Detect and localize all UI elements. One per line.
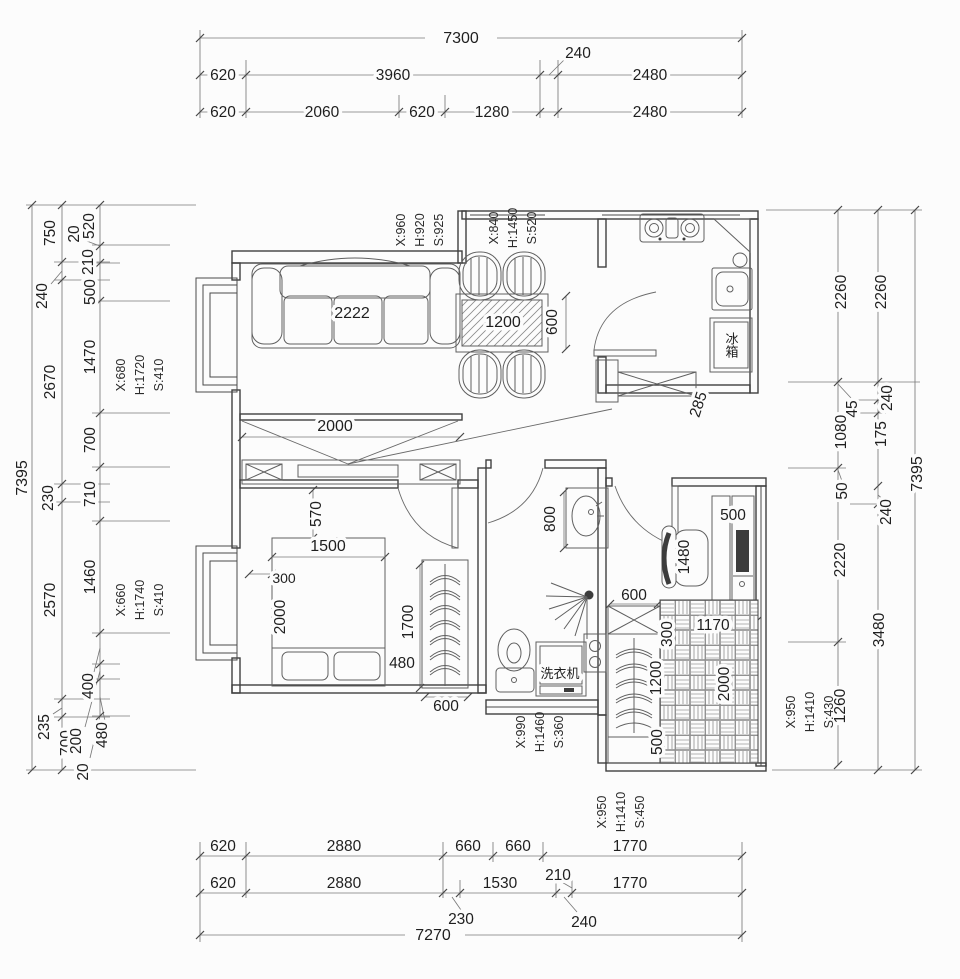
label-study-closet-bottom: 500 [649,729,666,755]
shower [546,583,594,639]
dim-right-i2: 1080 [833,414,850,449]
dim-top-r2-1: 3960 [376,67,411,84]
label-closet-height: 1700 [400,604,417,639]
dim-top-r3-1: 2060 [305,104,340,121]
annotation-h: H:1720 [133,355,147,395]
label-table-depth: 600 [544,309,561,335]
dim-left-i8: 400 [80,673,97,699]
label-washing-machine: 洗衣机 [540,666,579,681]
annotation-x: X:660 [114,584,128,617]
label-sofa: 2222 [334,305,370,322]
annotation-x: X:840 [487,212,501,245]
labels: 7300 620 3960 240 2480 620 2060 620 1280… [14,30,926,944]
annotation-s: S:410 [152,359,166,392]
annotation-s: S:450 [633,796,647,829]
window-annotation-kitchen: X:840 H:1450 S:520 [487,208,539,248]
bedroom-door [398,488,458,548]
dim-left-i3: 500 [82,279,99,305]
label-table-width: 1200 [485,314,521,331]
dimension-ticks [28,34,919,939]
dim-right-i4: 2220 [832,542,849,577]
dim-top-r2-3: 2480 [633,67,668,84]
dim-left-i1: 20 [66,225,83,243]
annotation-x: X:950 [784,696,798,729]
bathroom-door [488,468,543,523]
annotation-h: H:1410 [614,792,628,832]
window-annotation-bath: X:990 H:1460 S:360 [514,712,566,752]
dim-top-r3-2: 620 [409,104,435,121]
study-upper-cabinet [608,606,660,634]
dim-bot-r2-4: 1770 [613,875,648,892]
kitchen-sink [712,268,752,310]
dim-top-total: 7300 [443,30,479,47]
dim-top-r3-0: 620 [210,104,236,121]
dim-top-r3-3: 1280 [475,104,510,121]
window-annotation-balcony: X:950 H:1410 S:450 [595,792,647,832]
dim-left-total: 7395 [14,460,31,496]
dim-left-o1: 240 [34,283,51,309]
bay-window-bedroom [196,546,237,660]
dim-bot-r2-1: 2880 [327,875,362,892]
dim-top-r3-4: 2480 [633,104,668,121]
dim-right-i0: 2260 [833,274,850,309]
sofa [252,258,460,348]
dim-bot-r2-2: 1530 [483,875,518,892]
label-bed-length: 2000 [272,599,289,634]
label-study-closet-length: 1200 [648,660,665,695]
basin [566,488,608,548]
bay-window-living [196,278,237,392]
dim-bot-leader-1: 240 [571,914,597,931]
label-bed-width: 1500 [310,538,346,555]
annotation-s: S:430 [822,696,836,729]
annotation-x: X:950 [595,796,609,829]
dim-left-i0: 520 [81,213,98,239]
dim-left-o0: 750 [42,220,59,246]
annotation-h: H:1410 [803,692,817,732]
dim-bot-r2-0: 620 [210,875,236,892]
annotation-x: X:960 [394,214,408,247]
annotation-h: H:1740 [133,580,147,620]
label-study-bed-length: 2000 [716,666,733,701]
dim-top-r2-2: 240 [565,45,591,62]
dim-left-o5: 235 [36,714,53,740]
label-tv-wall: 2000 [317,418,353,435]
label-basin: 800 [542,506,559,532]
dim-right-o1: 240 [879,385,896,411]
corner-shelf [714,219,750,252]
dim-left-i10: 480 [94,722,111,748]
label-chair: 1480 [676,539,693,574]
stove [640,214,704,242]
dim-right-i3: 50 [834,482,851,500]
dim-right-o0: 2260 [873,274,890,309]
label-fridge: 冰箱 [724,332,739,358]
dim-bot-leader-0: 230 [448,911,474,928]
dimension-lines [26,30,922,942]
toilet [496,629,534,692]
label-study-bed-width: 1170 [696,617,730,634]
annotation-x: X:680 [114,359,128,392]
annotation-h: H:1450 [506,208,520,248]
annotation-x: X:990 [514,716,528,749]
dim-left-i4: 1470 [82,339,99,374]
annotation-s: S:520 [525,212,539,245]
dim-bot-r1-2: 660 [455,838,481,855]
label-desk: 500 [720,507,746,524]
dim-bot-r2-3: 210 [545,867,571,884]
dim-right-o2: 175 [873,421,890,447]
floor-plan-svg: 7300 620 3960 240 2480 620 2060 620 1280… [0,0,960,979]
bath-cabinet [584,634,606,672]
dim-left-i5: 700 [82,427,99,453]
floor-plan-page: 7300 620 3960 240 2480 620 2060 620 1280… [0,0,960,979]
window-annotation-living: X:680 H:1720 S:410 [114,355,166,395]
drain-circle [733,253,747,267]
label-study-closet-top: 600 [621,587,647,604]
label-bed-offset: 300 [272,570,296,586]
dim-left-o2: 2670 [42,364,59,399]
window-annotation-entry: X:960 H:920 S:925 [394,213,446,246]
dim-left-i9: 200 [68,728,85,754]
dim-bot-r1-3: 660 [505,838,531,855]
dim-left-o4: 2570 [42,582,59,617]
dim-bot-r1-0: 620 [210,838,236,855]
dim-right-total: 7395 [909,456,926,492]
annotation-h: H:1460 [533,712,547,752]
window-annotation-bedroom: X:660 H:1740 S:410 [114,580,166,620]
wardrobe-bedroom [422,560,468,688]
entry-door [594,292,656,356]
dim-bot-total: 7270 [415,927,451,944]
dim-right-o3: 240 [878,499,895,525]
window-annotation-study: X:950 H:1410 S:430 [784,692,836,732]
dim-left-o3: 230 [40,485,57,511]
dim-left-i11: 20 [75,763,92,781]
dim-left-i2: 210 [80,249,97,275]
label-closet-width: 600 [433,698,459,715]
dim-left-i6: 710 [82,481,99,507]
annotation-h: H:920 [413,213,427,246]
label-closet-gap: 480 [389,655,415,672]
dim-bot-r1-4: 1770 [613,838,648,855]
dim-top-r2-0: 620 [210,67,236,84]
dim-left-i7: 1460 [82,559,99,594]
annotation-s: S:925 [432,214,446,247]
annotation-s: S:410 [152,584,166,617]
label-study-bed-offset: 300 [659,621,676,647]
annotation-s: S:360 [552,716,566,749]
shoe-cabinet [596,360,696,402]
dim-right-o4: 3480 [871,612,888,647]
label-passage: 570 [308,501,325,527]
dim-bot-r1-1: 2880 [327,838,362,855]
